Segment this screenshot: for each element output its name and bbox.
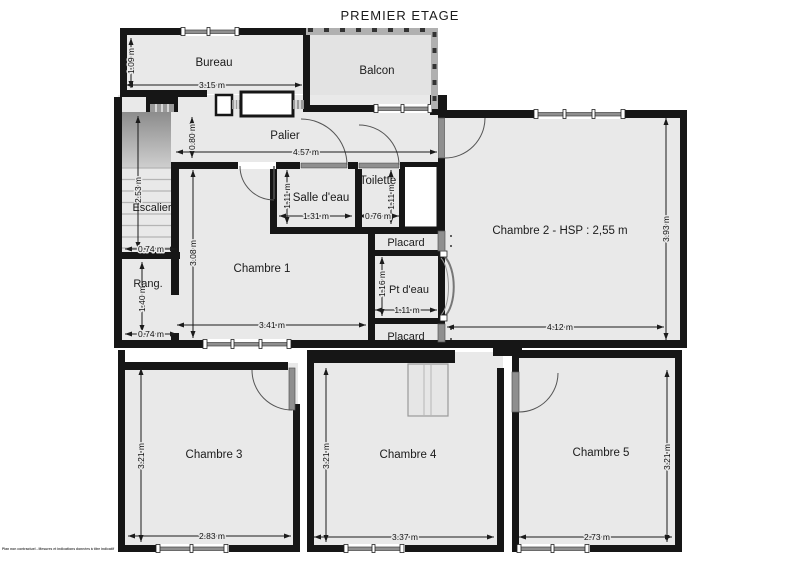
dimension-label: 1.16 m	[377, 271, 387, 297]
dimension-label: 3.21 m	[662, 444, 672, 470]
dimension-label: 3.15 m	[199, 80, 225, 90]
dimension-label: 1.11 m	[394, 305, 419, 315]
room-label-chambre-2: Chambre 2 - HSP : 2,55 m	[492, 225, 627, 237]
duct-shaft	[403, 165, 438, 228]
dimension-label: 4.57 m	[293, 147, 319, 157]
dimension-label: 3.08 m	[188, 240, 198, 266]
room-label-toilette: Toilette	[360, 175, 396, 187]
dimension-label: 0.74 m	[138, 329, 164, 339]
room-label-salle-deau: Salle d'eau	[293, 192, 350, 204]
dimension-label: 3.37 m	[392, 532, 418, 542]
plan-title: PREMIER ETAGE	[341, 8, 460, 23]
dimension-label: 1.11 m	[282, 183, 292, 208]
window-chambre4	[344, 544, 405, 553]
room-label-chambre-5: Chambre 5	[573, 447, 630, 459]
dimension-label: 0.76 m	[365, 211, 391, 221]
dimension-label: 1.11 m	[386, 184, 396, 209]
room-label-escalier: Escalier	[132, 202, 171, 214]
window-chambre2	[534, 109, 625, 119]
room-label-chambre-1: Chambre 1	[234, 263, 291, 275]
dimension-label: 3.21 m	[136, 443, 146, 469]
room-label-chambre-4: Chambre 4	[380, 449, 437, 461]
room-label-chambre-3: Chambre 3	[186, 449, 243, 461]
room-label-pt-deau: Pt d'eau	[389, 284, 429, 296]
dimension-label: 4.12 m	[547, 322, 573, 332]
dimension-label: 3.41 m	[259, 320, 285, 330]
dimension-label: 2.83 m	[199, 531, 225, 541]
dimension-label: 2.73 m	[584, 532, 610, 542]
closet-symbol	[408, 364, 448, 416]
window-chambre3	[156, 544, 229, 553]
room-label-placard-haut: Placard	[387, 237, 424, 249]
dimension-label: 3.93 m	[661, 216, 671, 242]
room-label-palier: Palier	[270, 130, 300, 142]
dimension-label: 1.09 m	[126, 48, 136, 74]
dimension-label: 1.31 m	[303, 211, 329, 221]
dimension-label: 3.21 m	[321, 443, 331, 469]
dimension-label: 0.74 m	[138, 244, 164, 254]
window-chambre5	[517, 544, 590, 553]
floorplan-canvas: Plan non contractuel - Mesures et indica…	[0, 0, 800, 564]
floorplan-drawing: Plan non contractuel - Mesures et indica…	[0, 0, 800, 564]
disclaimer: Plan non contractuel - Mesures et indica…	[2, 547, 115, 551]
room-label-placard-bas: Placard	[387, 331, 424, 343]
dimension-label: 2.53 m	[133, 177, 143, 203]
room-label-rangement: Rang.	[133, 278, 162, 290]
window-bureau	[181, 27, 239, 36]
window-chambre1	[203, 339, 291, 349]
room-label-bureau: Bureau	[195, 57, 232, 69]
room-label-balcon: Balcon	[359, 65, 394, 77]
dimension-label: 0.80 m	[187, 124, 197, 150]
window-balcon-door	[374, 104, 432, 113]
